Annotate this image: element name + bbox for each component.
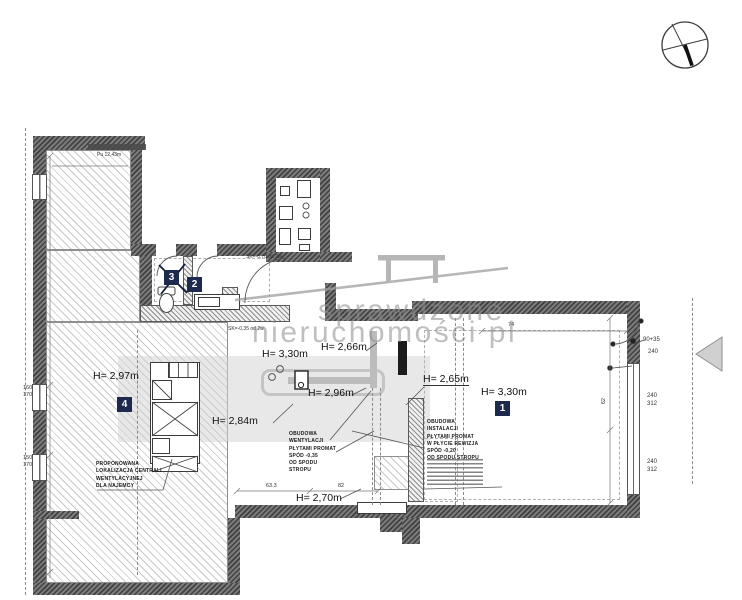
shaft-duct-2 [297,180,311,198]
wall-left-pier [33,511,79,519]
shaft-duct-1 [280,186,290,196]
shaft-duct-3 [279,206,293,220]
height-label-284: H= 2,84m [212,415,258,427]
note-area: Pu 12,43m [97,152,121,158]
fine-print-lines [427,459,483,487]
wall-shaft-left [266,168,276,262]
window-right-strip [627,363,640,495]
room-badge-1: 1 [495,401,510,416]
window-left-bottom [32,454,47,481]
room-badge-2: 2 [187,277,202,292]
shaft-duct-4 [279,228,291,245]
dim-door-right-b: 240 [648,349,658,357]
room-badge-4: 4 [117,397,132,412]
dim-door-right-a: 90+35 [643,337,660,345]
wall-shaft-right [320,168,330,262]
ahu-box-main [152,402,198,436]
north-arrow-icon [662,22,708,68]
wall-bottom-left [33,583,240,595]
wall-room3-left [140,256,152,306]
dim-633: 63.3 [266,483,277,490]
dim-window-right-2: 240 312 [647,459,657,474]
watermark-line2: nieruchomości pl [252,316,517,350]
wall-bottom-main [235,505,640,518]
dashed-line-4 [380,388,381,505]
section-arrow-icon [696,337,722,371]
wall-corridor-top [320,252,352,262]
shaft-duct-6 [299,244,310,251]
door-gap-room2 [197,244,217,256]
height-label-265: H= 2,65m [423,373,469,386]
sink-room2 [198,297,220,307]
dim-62: 62 [601,398,608,404]
window-left-top [32,174,47,200]
height-label-270: H= 2,70m [296,492,342,504]
ahu-box-small [152,380,172,400]
dim-82: 82 [338,483,344,490]
annotation-ahu-proposal: PROPONOWANA LOKALIZACJA CENTRALI WENTYLA… [96,461,171,490]
wall-left [33,136,46,595]
annotation-inst-enclosure: OBUDOWA INSTALACJI PŁYTAMI PROMAT W PŁYC… [427,419,497,463]
wall-lowerleft-vertical [228,518,240,583]
height-label-room4: H= 2,97m [93,370,139,382]
dashed-line-3 [372,388,373,505]
room-badge-3: 3 [164,270,179,285]
dim-window-left-bottom: 150 170 [23,455,32,469]
section-line-right [692,298,693,484]
dim-window-right-1: 240 312 [647,393,657,408]
ahu-box-fan [152,438,170,454]
wall-room4-right [131,150,142,252]
riser-hatch-strip [408,398,424,502]
plot-boundary-line-left [25,128,26,595]
ceiling-band-horizontal [288,377,377,384]
ahu-louver [168,362,198,378]
shaft-duct-5 [298,228,311,240]
room4-title-strip [88,144,146,150]
annotation-vent-enclosure: OBUDOWA WENTYLACJI PŁYTAMI PROMAT SPÓD -… [289,431,347,475]
height-label-room1: H= 3,30m [481,386,527,398]
room4-upper-hatch [46,150,131,250]
wall-pilaster-step [402,518,420,544]
note-sk70: SK=-0,70 od 2w. [246,254,283,260]
dim-window-left-top: 160 170 [23,385,32,399]
wall-right-upper [627,301,640,363]
room4-mid-hatch [46,250,140,322]
height-label-296: H= 2,96m [308,387,354,399]
window-left-mid [32,384,47,411]
door-gap-room3 [156,244,176,256]
bottom-wall-niche [357,502,407,514]
dashed-line-room4 [137,330,138,575]
floorplan-canvas: sprawdzone nieruchomości pl H= 2,97m H= … [0,0,742,600]
